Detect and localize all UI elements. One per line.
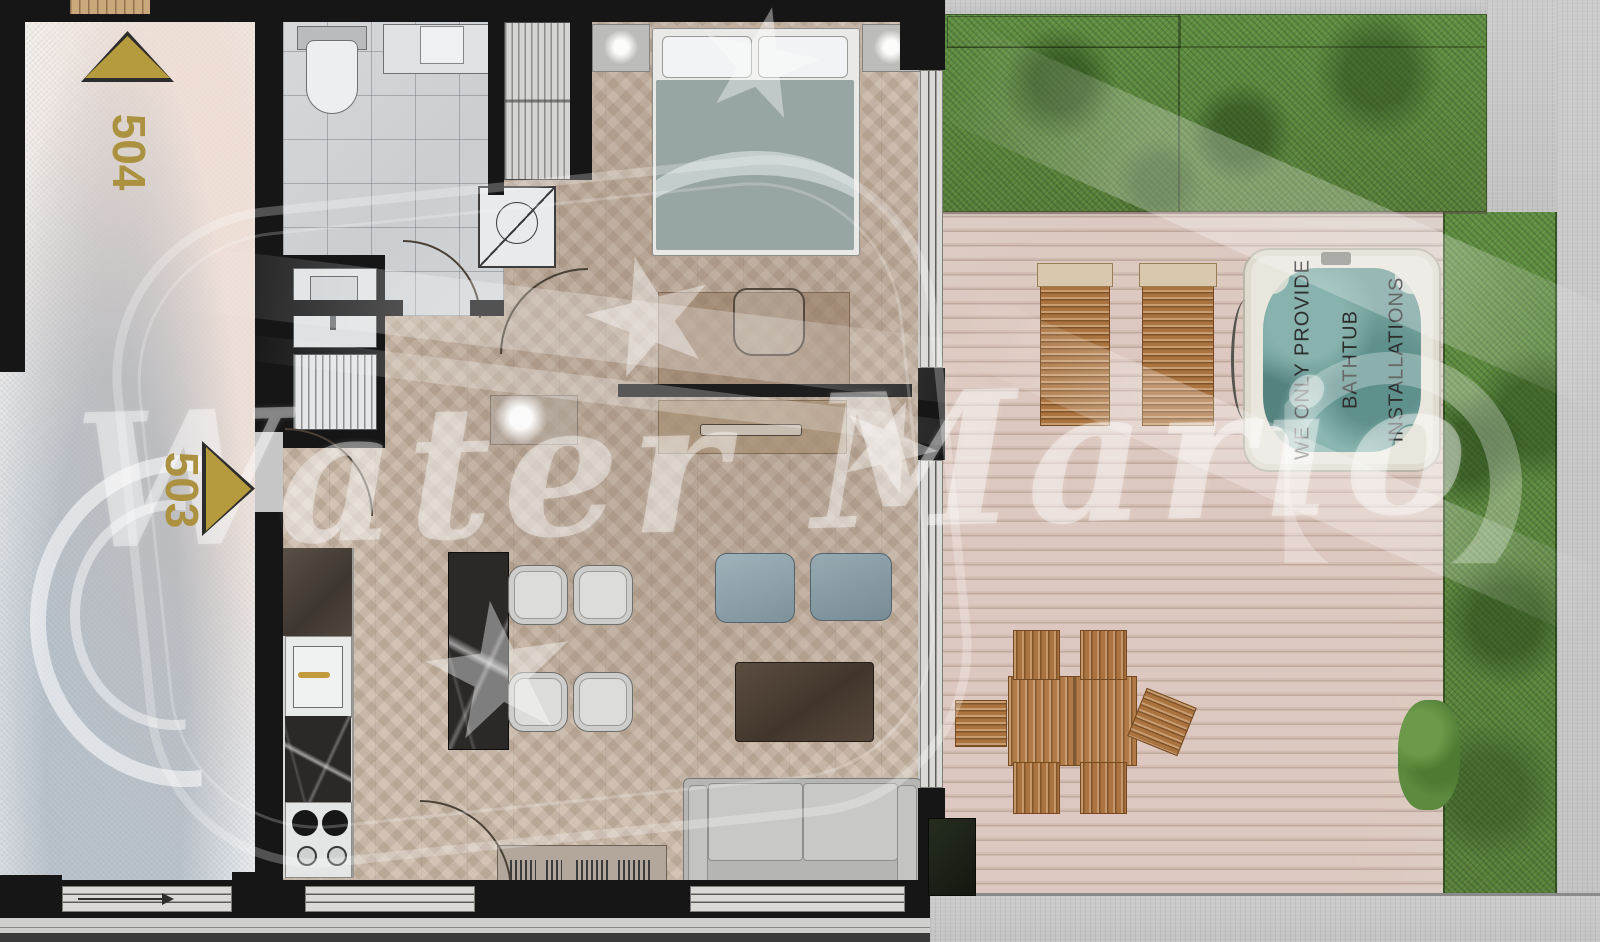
stairs-gap — [70, 0, 150, 14]
lounger-headrest — [1037, 263, 1113, 287]
wardrobe — [504, 22, 572, 180]
vanity-basin — [420, 26, 464, 64]
slide-arrow-line — [78, 898, 164, 900]
lounger-headrest — [1139, 263, 1217, 287]
terrace-chair-bottom-1 — [1013, 762, 1060, 814]
terrace-planter — [928, 818, 976, 896]
unit-504-label: 504 — [102, 114, 156, 191]
slide-arrow-head — [162, 893, 174, 905]
wall-bathroom-bedroom — [488, 22, 504, 195]
bedside-lamp-left — [604, 30, 638, 64]
pavement-right-strip — [1557, 0, 1600, 942]
terrace-chair-left — [955, 700, 1007, 747]
terrace-chair-top-1 — [1013, 630, 1060, 680]
terrace-table-seam — [1073, 677, 1075, 765]
window-living-south-1 — [305, 886, 475, 912]
wall-top-apartment — [255, 0, 920, 22]
pavement-bottom-strip — [930, 893, 1600, 942]
facade-sill-base — [0, 933, 930, 942]
terrace-chair-top-2 — [1080, 630, 1127, 680]
sofa-armrest-right — [897, 785, 917, 887]
wall-right-top-corner — [900, 0, 945, 70]
watermark-brand-text: Water Mario — [72, 337, 1480, 592]
toilet — [306, 40, 358, 114]
wall-wardrobe-bedroom — [570, 22, 592, 180]
wall-kitchen-corner — [232, 872, 283, 918]
terrace-table — [1008, 676, 1137, 766]
window-living-south-2 — [690, 886, 905, 912]
wall-left-504 — [0, 22, 25, 372]
sliding-door-504 — [62, 886, 232, 912]
floor-plan-canvas: WE ONLY PROVIDE BATHTUB INSTALLATIONS Wa… — [0, 0, 1600, 942]
bush-overhang — [1398, 700, 1460, 810]
wall-bottom-left-corner — [0, 875, 62, 918]
terrace-chair-bottom-2 — [1080, 762, 1127, 814]
unit-503-label: 503 — [155, 452, 209, 529]
